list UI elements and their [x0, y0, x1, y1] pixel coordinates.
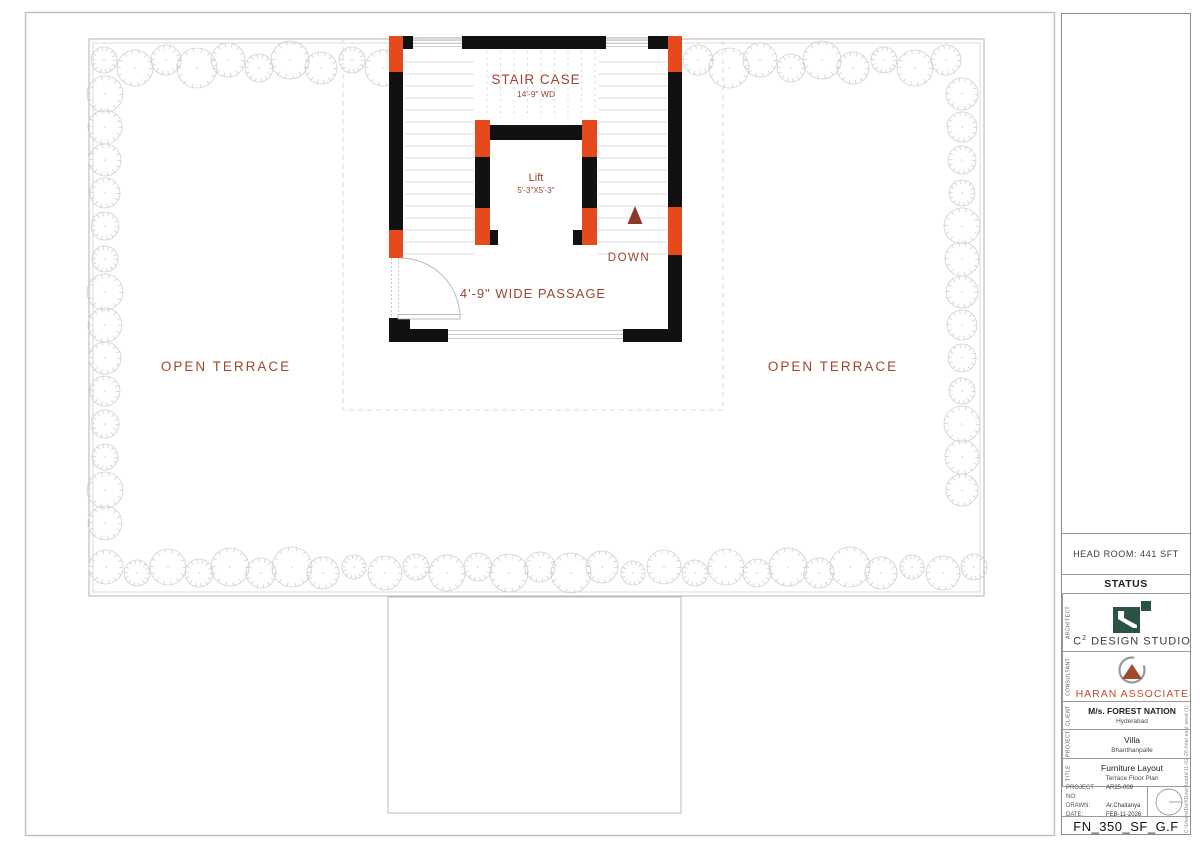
architect-section-label: ARCHITECT: [1062, 594, 1074, 651]
project-location: Bhanthanpalle: [1111, 747, 1153, 754]
status-label: STATUS: [1062, 574, 1190, 593]
drawing-sheet: STAIR CASE 14'-9" WD Lift 5'-3"X5'-3" DO…: [0, 0, 1200, 848]
drawing-number: FN_350_SF_G.F: [1062, 816, 1190, 836]
project-name: Villa: [1124, 735, 1140, 745]
stair-case-label: STAIR CASE: [491, 72, 580, 87]
floor-plan-svg: STAIR CASE 14'-9" WD Lift 5'-3"X5'-3" DO…: [0, 0, 1060, 848]
compass-circle-icon: [1152, 787, 1186, 817]
project-section-label: PROJECT: [1062, 730, 1074, 758]
project-no-value: AR25-009: [1106, 784, 1133, 802]
c2-design-studio-wordmark: C2 DESIGN STUDIO: [1074, 635, 1190, 648]
lift-label: Lift: [529, 172, 544, 184]
lift-size-label: 5'-3"X5'-3": [517, 186, 554, 195]
lower-floor-outline: [388, 597, 681, 813]
architect-section: ARCHITECT C2 DESIGN STUDIO: [1062, 593, 1190, 651]
file-path-vertical-text: C:\Users\Dell\Downloads\11-02-26-final e…: [1184, 688, 1191, 833]
terrace-boundary-outer: [89, 39, 984, 596]
client-city: Hyderabad: [1116, 718, 1148, 725]
charan-associates-logo-icon: [1112, 654, 1152, 688]
client-name: M/s. FOREST NATION: [1088, 706, 1176, 716]
down-label: DOWN: [608, 252, 650, 264]
project-no-label: PROJECT NO:: [1066, 784, 1106, 802]
title-block: HEAD ROOM: 441 SFT STATUS ARCHITECT C2 D…: [1061, 13, 1191, 835]
stair-case-width-label: 14'-9" WD: [517, 89, 555, 99]
drawn-value: Ar.Chaitanya: [1106, 802, 1140, 811]
drawn-label: DRAWN:: [1066, 802, 1106, 811]
client-section: CLIENT M/s. FOREST NATION Hyderabad: [1062, 701, 1190, 729]
title-section: TITLE Furniture Layout Terrace Floor Pla…: [1062, 758, 1190, 786]
open-terrace-right-label: OPEN TERRACE: [768, 359, 898, 374]
passage-label: 4'-9" WIDE PASSAGE: [460, 286, 606, 301]
project-section: PROJECT Villa Bhanthanpalle: [1062, 729, 1190, 758]
drawing-subtitle: Terrace Floor Plan: [1105, 775, 1158, 782]
drawn-row: DRAWN: Ar.Chaitanya: [1066, 802, 1147, 811]
drawing-title: Furniture Layout: [1101, 763, 1163, 773]
client-section-label: CLIENT: [1062, 702, 1074, 729]
open-terrace-left-label: OPEN TERRACE: [161, 359, 291, 374]
info-section: PROJECT NO: AR25-009 DRAWN: Ar.Chaitanya…: [1062, 786, 1190, 816]
title-section-label: TITLE: [1062, 759, 1074, 786]
charan-associates-wordmark: CHARAN ASSOCIATES: [1074, 688, 1190, 700]
door-leaf: [398, 315, 460, 320]
consultant-section-label: CONSULTANT: [1062, 652, 1074, 701]
head-room-label: HEAD ROOM: 441 SFT: [1062, 533, 1190, 574]
c2-design-studio-logo-icon: [1110, 598, 1154, 634]
consultant-section: CONSULTANT CHARAN ASSOCIATES: [1062, 651, 1190, 701]
project-no-row: PROJECT NO: AR25-009: [1066, 784, 1147, 802]
